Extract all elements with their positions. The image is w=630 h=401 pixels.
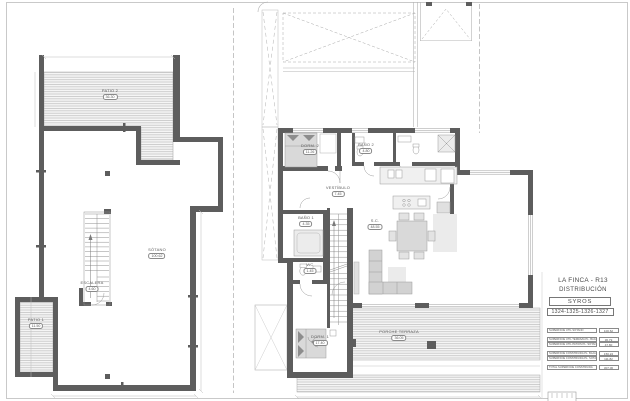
room-label-salon-comedor: S.C. 48.55 — [368, 219, 383, 230]
room-area: 4.60 — [85, 286, 98, 292]
room-area: 48.55 — [368, 224, 383, 230]
room-label-bano1: BAÑO 1 4.35 — [298, 216, 314, 227]
room-area: 7.45 — [331, 191, 344, 197]
room-label-patio2: PATIO 2 36.30 — [102, 89, 118, 100]
ground-stairs — [330, 214, 347, 325]
area-label: TOTAL SUPERFICIE CONSTRUIDA — [547, 365, 597, 370]
model-name-box: SYROS — [549, 297, 611, 307]
scale-bar — [548, 392, 576, 401]
room-label-patio1: PATIO 1 11.50 — [28, 318, 44, 329]
area-value: 307.06 — [599, 365, 619, 370]
area-value: 47.80 — [599, 342, 619, 347]
room-label-escalera: ESCALERA 4.60 — [81, 281, 104, 292]
room-name: PATIO 1 — [28, 318, 44, 323]
basement-plan-drawing — [15, 55, 223, 398]
room-area: 11.26 — [303, 149, 318, 155]
room-name: BAÑO 2 — [358, 143, 374, 148]
room-name: WC — [306, 263, 313, 268]
room-name: S.C. — [371, 219, 380, 224]
room-label-sotano: SÓTANO 100.62 — [148, 248, 166, 259]
ground-plan-drawing — [255, 128, 542, 399]
area-label: SUPERFICIE CONSTRUIDA PL. BAJA — [547, 351, 597, 356]
room-area: 36.30 — [103, 94, 118, 100]
room-name: BAÑO 1 — [298, 216, 314, 221]
area-value: 100.62 — [599, 328, 619, 333]
room-name: DORM. 1 — [311, 335, 329, 340]
patio1-hatch — [20, 302, 53, 372]
room-area: 4.35 — [300, 221, 313, 227]
basement-door-arc — [92, 293, 104, 305]
plot-numbers-box: 1324-1325-1326-1327 — [547, 308, 614, 317]
room-name: VESTÍBULO — [326, 186, 350, 191]
room-label-dorm2: DORM. 2 11.26 — [301, 144, 319, 155]
project-title: LA FINCA - R13 — [545, 277, 621, 284]
room-name: SÓTANO — [148, 248, 166, 253]
room-area: 11.50 — [29, 323, 44, 329]
room-label-porche-terraza: PORCHE TERRAZA 36.05 — [379, 330, 419, 341]
drawing-title: DISTRIBUCIÓN — [545, 287, 621, 293]
drawing-sheet: PATIO 2 36.30 SÓTANO 100.62 ESCALERA 4.6… — [0, 0, 630, 401]
stair-direction-arrow — [89, 234, 93, 240]
room-name: DORM. 2 — [301, 144, 319, 149]
area-value: 111.82 — [599, 356, 619, 361]
ground-stair-arrow — [332, 220, 336, 226]
room-area: 100.62 — [148, 253, 165, 259]
area-label: SUPERFICIE ÚTIL TERRAZA PL. BAJA — [547, 337, 597, 342]
area-value: 150.24 — [599, 351, 619, 356]
area-label: SUPERFICIE ÚTIL SÓTANO — [547, 328, 597, 333]
area-value: 36.79 — [599, 337, 619, 342]
room-name: ESCALERA — [81, 281, 104, 286]
area-label: SUPERFICIE CONSTRUIDA PL. SÓTANO — [547, 356, 597, 361]
room-label-wc: WC 1.45 — [304, 263, 317, 274]
room-area: 4.80 — [360, 148, 373, 154]
patio2-hatch — [44, 72, 173, 160]
room-label-dorm1: DORM. 1 17.40 — [311, 335, 329, 346]
room-name: PATIO 2 — [102, 89, 118, 94]
room-area: 36.05 — [392, 335, 407, 341]
room-label-bano2: BAÑO 2 4.80 — [358, 143, 374, 154]
room-name: PORCHE TERRAZA — [379, 330, 419, 335]
room-area: 1.45 — [304, 268, 317, 274]
room-label-vestibulo: VESTÍBULO 7.45 — [326, 186, 350, 197]
room-area: 17.40 — [312, 340, 327, 346]
area-label: SUPERFICIE ÚTIL PATIOS PL. SÓTANO — [547, 342, 597, 347]
